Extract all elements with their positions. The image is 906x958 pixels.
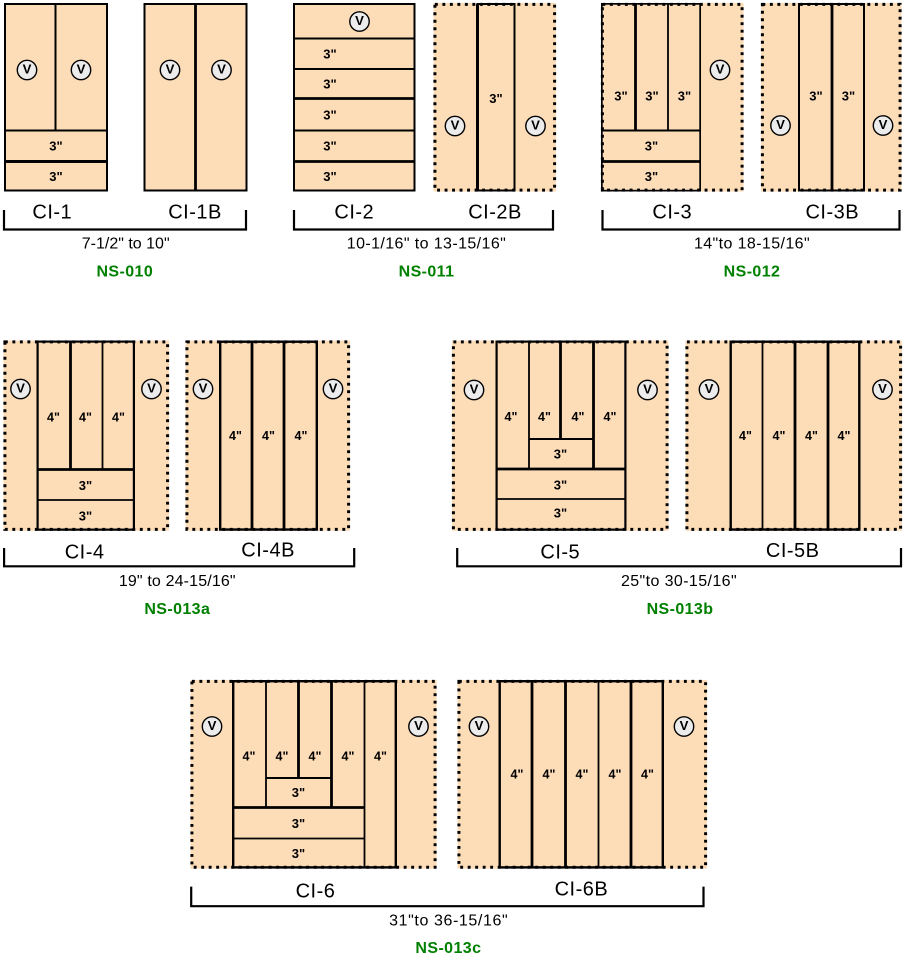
svg-text:4": 4" xyxy=(505,410,518,424)
svg-text:V: V xyxy=(776,117,785,132)
svg-text:10-1/16" to 13-15/16": 10-1/16" to 13-15/16" xyxy=(347,235,506,252)
svg-text:V: V xyxy=(878,381,887,396)
svg-text:NS-011: NS-011 xyxy=(399,264,455,281)
svg-text:4": 4" xyxy=(229,429,242,443)
svg-text:3": 3" xyxy=(489,91,502,106)
svg-text:CI-3: CI-3 xyxy=(652,202,692,224)
svg-text:V: V xyxy=(451,118,460,133)
svg-text:V: V xyxy=(208,718,217,733)
svg-text:CI-6B: CI-6B xyxy=(555,878,609,900)
svg-text:NS-013a: NS-013a xyxy=(144,601,210,618)
svg-text:V: V xyxy=(166,62,175,77)
svg-text:V: V xyxy=(23,62,32,77)
svg-text:NS-013b: NS-013b xyxy=(647,601,714,618)
svg-text:4": 4" xyxy=(739,429,752,443)
svg-text:V: V xyxy=(531,118,540,133)
svg-text:4": 4" xyxy=(262,429,275,443)
svg-text:4": 4" xyxy=(641,768,654,782)
svg-text:CI-4B: CI-4B xyxy=(241,540,295,562)
svg-text:NS-012: NS-012 xyxy=(724,264,781,281)
svg-text:4": 4" xyxy=(342,750,355,764)
svg-text:3": 3" xyxy=(323,139,336,154)
svg-text:4": 4" xyxy=(805,429,818,443)
svg-text:V: V xyxy=(470,382,479,397)
svg-text:V: V xyxy=(716,62,725,77)
svg-text:V: V xyxy=(643,382,652,397)
svg-text:V: V xyxy=(329,381,338,396)
svg-text:3": 3" xyxy=(645,169,658,184)
svg-text:V: V xyxy=(77,62,86,77)
svg-text:3": 3" xyxy=(79,509,92,524)
svg-text:3": 3" xyxy=(554,478,567,493)
svg-text:3": 3" xyxy=(79,478,92,493)
svg-text:4": 4" xyxy=(79,411,92,425)
svg-text:V: V xyxy=(414,718,423,733)
svg-text:V: V xyxy=(680,718,689,733)
svg-text:4": 4" xyxy=(543,768,556,782)
svg-text:CI-3B: CI-3B xyxy=(805,202,859,224)
svg-text:V: V xyxy=(475,718,484,733)
svg-text:3": 3" xyxy=(554,447,567,462)
svg-text:4": 4" xyxy=(609,768,622,782)
svg-text:CI-2B: CI-2B xyxy=(468,202,522,224)
svg-text:7-1/2" to 10": 7-1/2" to 10" xyxy=(82,235,170,252)
svg-text:4": 4" xyxy=(838,429,851,443)
svg-text:V: V xyxy=(879,117,888,132)
svg-text:25"to 30-15/16": 25"to 30-15/16" xyxy=(621,573,737,590)
svg-text:4": 4" xyxy=(773,429,786,443)
svg-text:3": 3" xyxy=(292,816,305,831)
svg-text:4": 4" xyxy=(538,410,551,424)
svg-text:CI-5B: CI-5B xyxy=(766,540,820,562)
svg-text:4": 4" xyxy=(374,750,387,764)
svg-text:4": 4" xyxy=(572,410,585,424)
svg-text:4": 4" xyxy=(309,750,322,764)
svg-text:3": 3" xyxy=(292,846,305,861)
svg-text:CI-5: CI-5 xyxy=(540,542,580,564)
svg-text:3": 3" xyxy=(645,89,658,104)
svg-text:3": 3" xyxy=(323,77,336,92)
svg-text:4": 4" xyxy=(47,411,60,425)
svg-text:NS-010: NS-010 xyxy=(96,264,153,281)
svg-text:31"to 36-15/16": 31"to 36-15/16" xyxy=(389,913,508,930)
svg-text:3": 3" xyxy=(323,47,336,62)
svg-text:CI-1: CI-1 xyxy=(32,202,72,224)
svg-text:4": 4" xyxy=(276,750,289,764)
svg-text:3": 3" xyxy=(554,506,567,521)
svg-text:CI-1B: CI-1B xyxy=(168,202,222,224)
svg-text:14"to 18-15/16": 14"to 18-15/16" xyxy=(694,235,810,252)
svg-text:4": 4" xyxy=(295,429,308,443)
svg-text:V: V xyxy=(217,62,226,77)
svg-text:3": 3" xyxy=(323,169,336,184)
svg-text:NS-013c: NS-013c xyxy=(415,940,481,957)
svg-text:CI-2: CI-2 xyxy=(334,202,374,224)
svg-text:V: V xyxy=(705,381,714,396)
svg-text:4": 4" xyxy=(604,410,617,424)
svg-text:V: V xyxy=(199,381,208,396)
svg-text:4": 4" xyxy=(112,411,125,425)
svg-text:V: V xyxy=(147,381,156,396)
svg-text:V: V xyxy=(16,381,25,396)
svg-text:4": 4" xyxy=(576,768,589,782)
svg-text:3": 3" xyxy=(645,139,658,154)
svg-text:3": 3" xyxy=(614,89,627,104)
svg-text:19" to 24-15/16": 19" to 24-15/16" xyxy=(119,573,236,590)
svg-text:3": 3" xyxy=(842,89,855,104)
svg-text:3": 3" xyxy=(292,785,305,800)
svg-text:3": 3" xyxy=(323,108,336,123)
svg-text:CI-4: CI-4 xyxy=(65,542,105,564)
svg-text:3": 3" xyxy=(49,169,62,184)
svg-text:3": 3" xyxy=(49,139,62,154)
svg-text:3": 3" xyxy=(809,89,822,104)
svg-text:4": 4" xyxy=(243,750,256,764)
svg-text:CI-6: CI-6 xyxy=(296,881,336,903)
svg-text:V: V xyxy=(355,13,364,28)
svg-text:3": 3" xyxy=(678,89,691,104)
svg-text:4": 4" xyxy=(511,768,524,782)
